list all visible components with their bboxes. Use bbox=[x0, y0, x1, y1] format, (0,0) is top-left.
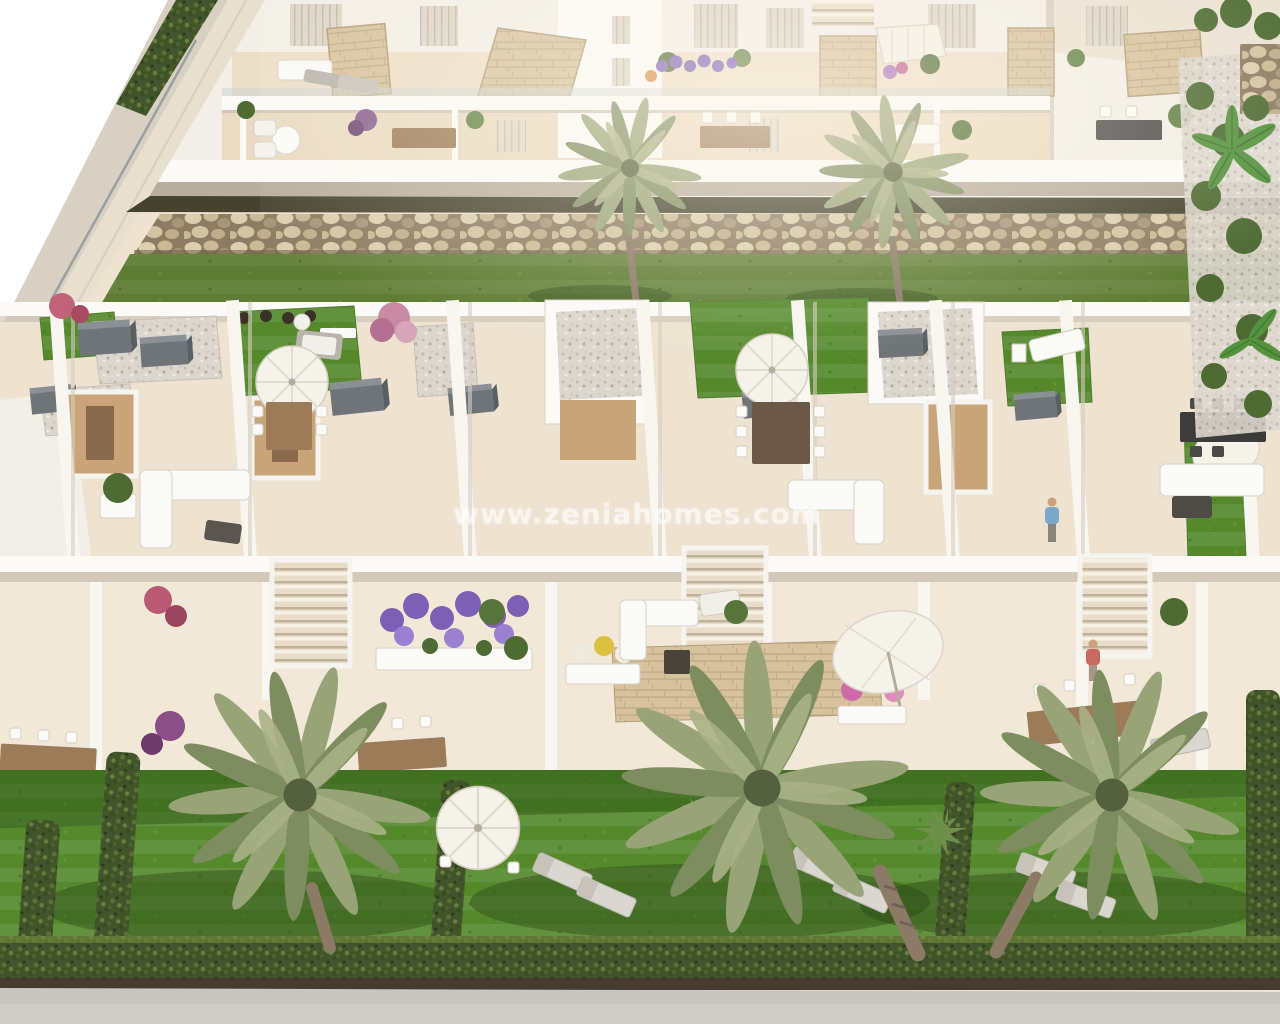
aerial-development-render: www.zeniahomes.com bbox=[0, 0, 1280, 1024]
street-edge bbox=[0, 936, 1280, 1024]
watermark: www.zeniahomes.com bbox=[453, 498, 821, 531]
sunlight-glare bbox=[260, 0, 1280, 420]
soil-border bbox=[0, 978, 1280, 990]
